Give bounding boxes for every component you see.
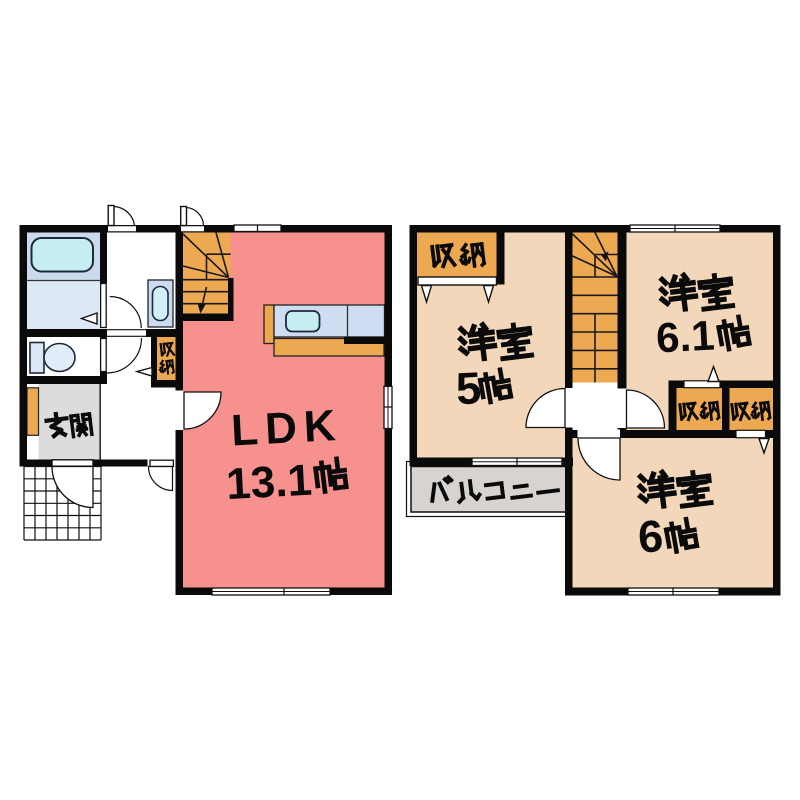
svg-text:13.1: 13.1 [225,456,313,509]
svg-text:5: 5 [455,362,483,414]
svg-text:6.1: 6.1 [655,311,716,361]
svg-text:LDK: LDK [230,401,344,456]
svg-text:6: 6 [637,510,665,562]
